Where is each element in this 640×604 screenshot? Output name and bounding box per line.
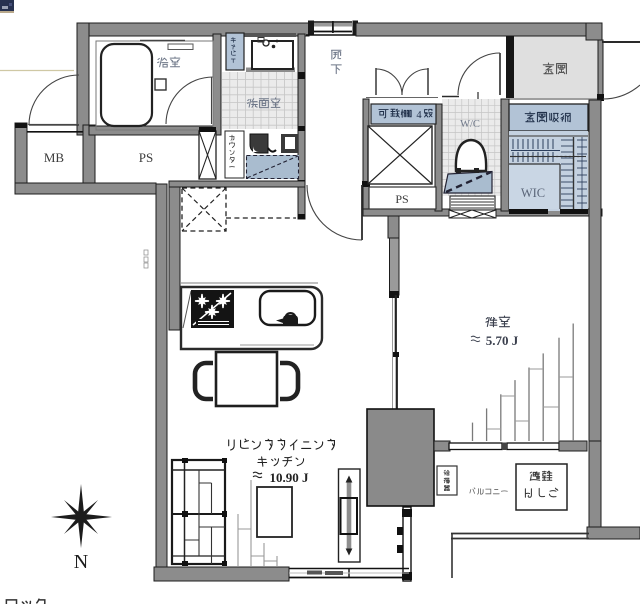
svg-text:N: N [74,551,88,573]
svg-text:WIC: WIC [521,186,545,200]
svg-text:MB: MB [44,150,65,165]
svg-text:10.90 J: 10.90 J [270,470,310,485]
svg-text:PS: PS [139,150,153,165]
svg-text:5.70 J: 5.70 J [486,333,519,348]
svg-text:W/C: W/C [460,119,480,130]
svg-text:4: 4 [416,110,422,121]
svg-text:PS: PS [395,192,408,206]
